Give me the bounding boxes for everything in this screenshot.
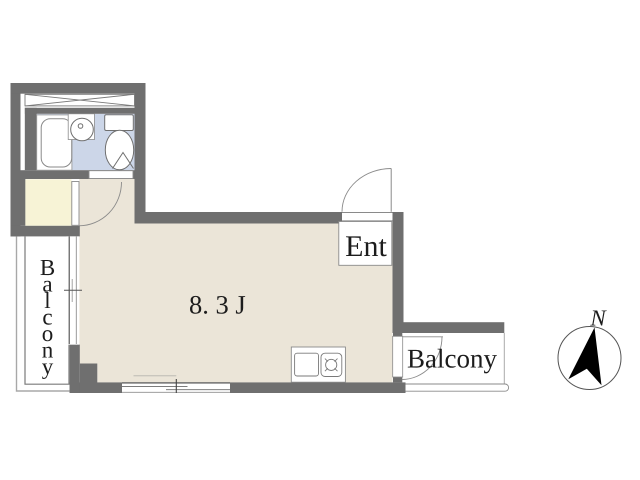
- svg-text:Ent: Ent: [345, 230, 387, 263]
- svg-text:y: y: [42, 354, 54, 379]
- svg-text:Balcony: Balcony: [407, 344, 497, 374]
- svg-text:8. 3 J: 8. 3 J: [189, 290, 246, 320]
